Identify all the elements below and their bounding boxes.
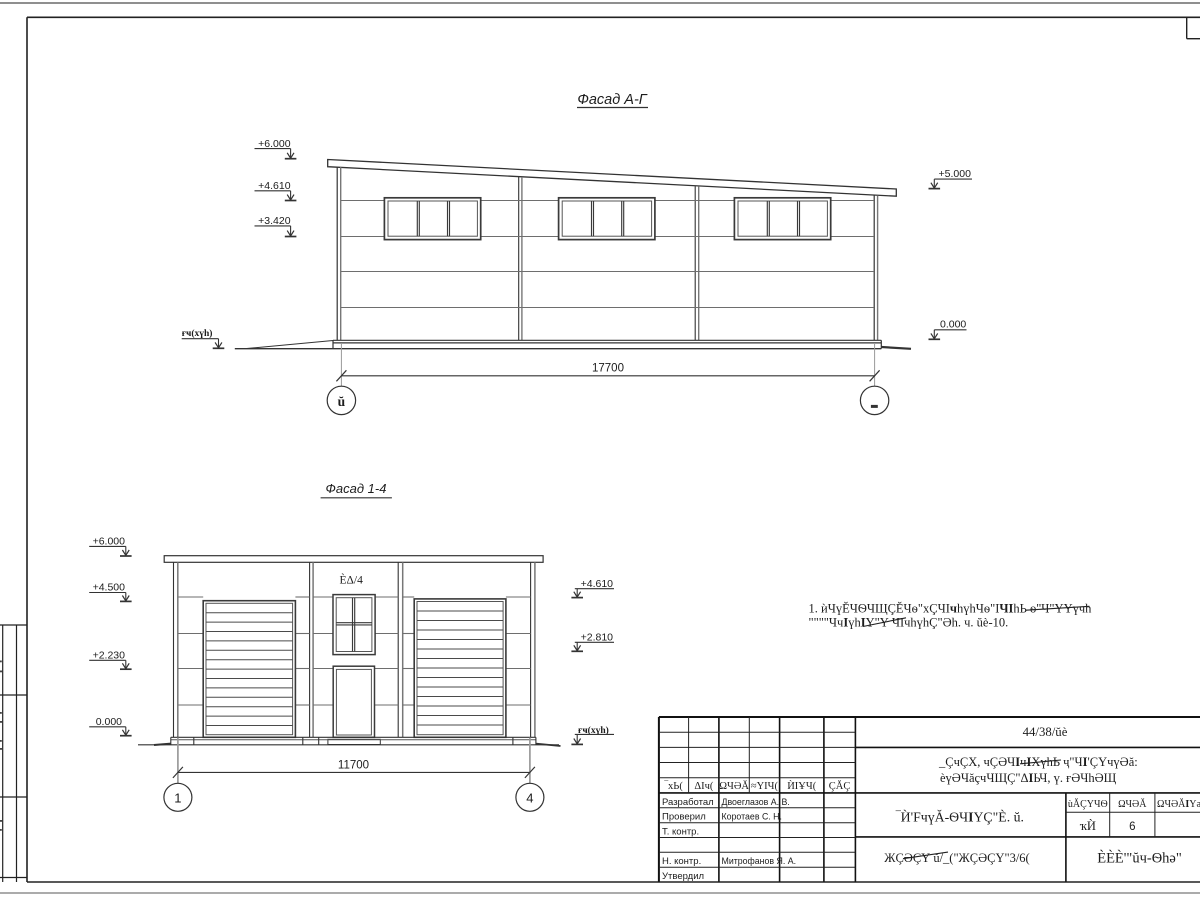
svg-text:+2.230: +2.230 (93, 649, 126, 661)
svg-text:+4.500: +4.500 (93, 582, 126, 594)
svg-text:≈ҮIЧ(: ≈ҮIЧ( (751, 781, 779, 792)
svg-text:ΩЧƏĂ: ΩЧƏĂ (1118, 798, 1147, 810)
svg-text:Митрофанов Я. А.: Митрофанов Я. А. (722, 856, 797, 866)
svg-text:Разработал: Разработал (662, 797, 714, 808)
svg-text:ÇĂÇ: ÇĂÇ (829, 780, 851, 792)
svg-text:+6.000: +6.000 (93, 536, 126, 548)
svg-text:+4.610: +4.610 (581, 578, 614, 590)
svg-text:ÈÈÈ'"ŭч-Ѳһə": ÈÈÈ'"ŭч-Ѳһə" (1097, 849, 1182, 866)
svg-text:ҡЍ: ҡЍ (1080, 819, 1096, 833)
svg-text:Н. контр.: Н. контр. (662, 856, 701, 867)
svg-text:ЍIҰЧ(: ЍIҰЧ( (787, 780, 816, 792)
svg-text:17700: 17700 (592, 362, 624, 374)
svg-text:+5.000: +5.000 (939, 168, 972, 180)
svg-text:ÈΔ/4: ÈΔ/4 (340, 573, 364, 587)
svg-text:44/38/ŭè: 44/38/ŭè (1023, 725, 1068, 739)
svg-text:ΔIч(: ΔIч( (694, 781, 714, 792)
svg-text:1: 1 (174, 790, 181, 805)
svg-text:+2.810: +2.810 (581, 631, 614, 643)
svg-text:‾Ѝ'FчүĂ-ѲЧIҮÇ"È. ŭ.: ‾Ѝ'FчүĂ-ѲЧIҮÇ"È. ŭ. (895, 809, 1024, 825)
svg-text:Фасад А-Г: Фасад А-Г (577, 92, 647, 108)
svg-text:ғҹ(хүһ): ғҹ(хүһ) (182, 328, 213, 339)
svg-text:6: 6 (1129, 821, 1135, 833)
svg-text:0.000: 0.000 (96, 716, 122, 728)
svg-text:ΩЧƏĂIҮə: ΩЧƏĂIҮə (1157, 798, 1200, 810)
svg-text:ŭ: ŭ (338, 394, 346, 409)
svg-text:Проверил: Проверил (662, 812, 706, 823)
svg-text:+6.000: +6.000 (258, 138, 291, 150)
svg-text:Утвердил: Утвердил (662, 871, 704, 882)
svg-text:4: 4 (526, 790, 533, 805)
svg-text:Фасад 1-4: Фасад 1-4 (326, 481, 387, 496)
svg-text:0.000: 0.000 (940, 319, 966, 331)
svg-text:èүƏЧăçчЧЩÇ"ΔIЬЧ, ү. ғƏЧһƏЩ: èүƏЧăçчЧЩÇ"ΔIЬЧ, ү. ғƏЧһƏЩ (940, 771, 1117, 785)
svg-text:Двоеглазов А. В.: Двоеглазов А. В. (722, 797, 790, 807)
svg-text:+3.420: +3.420 (258, 215, 291, 227)
svg-text:Т. контр.: Т. контр. (662, 826, 699, 837)
svg-text:""""ЧчIүһIҮ"Ү ЧIчһүһÇ"Əһ. ч. ŭ: """"ЧчIүһIҮ"Ү ЧIчһүһÇ"Əһ. ч. ŭè-10. (809, 615, 1009, 629)
svg-text:+4.610: +4.610 (258, 180, 291, 192)
svg-text:ùĂÇҮЧѲ: ùĂÇҮЧѲ (1068, 798, 1108, 810)
svg-text:‾хЬ(: ‾хЬ( (664, 780, 684, 792)
svg-text:Коротаев С. Н.: Коротаев С. Н. (722, 812, 782, 822)
svg-text:ΩЧƏĂ: ΩЧƏĂ (719, 780, 749, 792)
svg-text:11700: 11700 (338, 760, 369, 772)
